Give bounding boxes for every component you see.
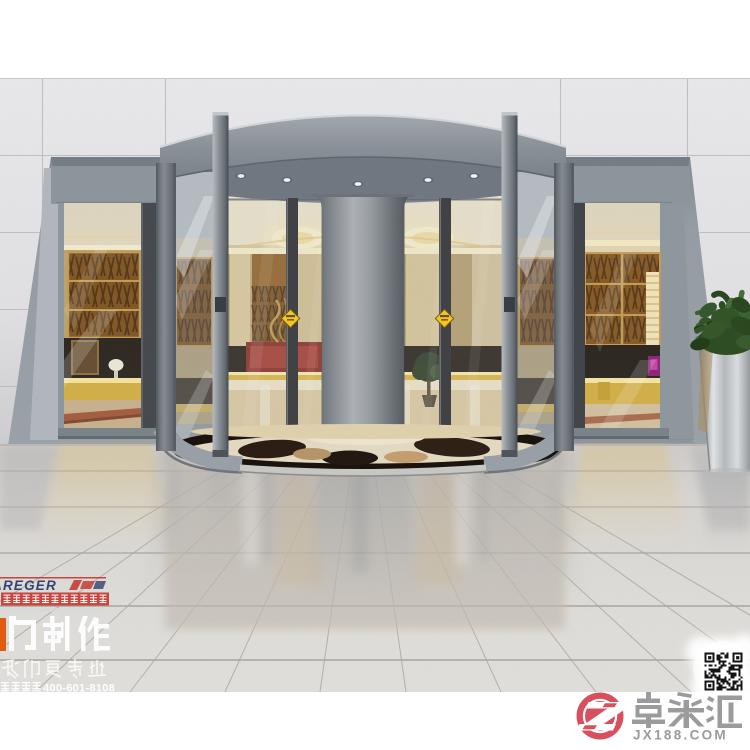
svg-text:400-601-8108: 400-601-8108: [43, 682, 115, 694]
svg-text:AREGER: AREGER: [0, 578, 57, 593]
svg-text:JX188.COM: JX188.COM: [633, 728, 728, 743]
